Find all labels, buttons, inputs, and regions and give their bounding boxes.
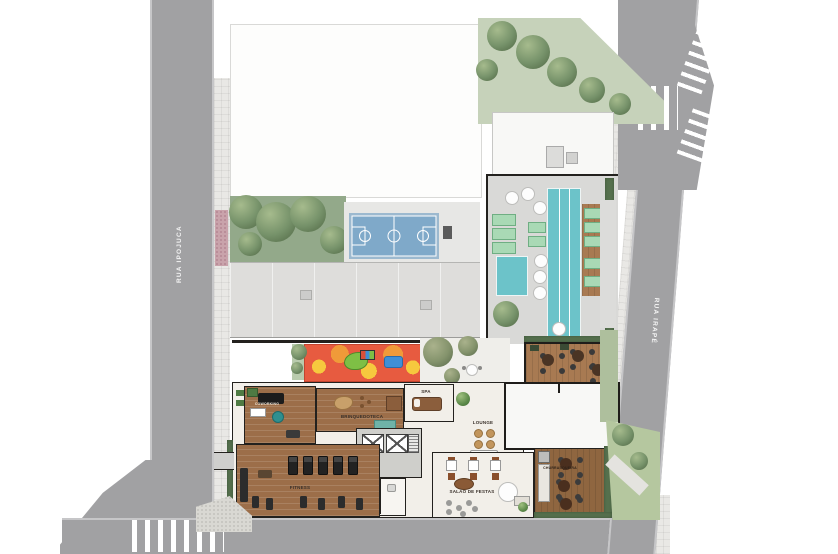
east-path bbox=[600, 200, 616, 328]
exercise-bike bbox=[338, 496, 345, 508]
tree bbox=[630, 452, 648, 470]
kids-table bbox=[386, 396, 402, 411]
patio-chair bbox=[462, 366, 466, 370]
terrace-table bbox=[572, 350, 584, 362]
flower-bed bbox=[215, 210, 228, 266]
tree bbox=[458, 336, 478, 356]
kids-pool bbox=[496, 256, 528, 296]
lounge-plant bbox=[456, 392, 470, 406]
exercise-bike bbox=[300, 496, 307, 508]
coworking-table bbox=[250, 408, 266, 417]
lounge-chair bbox=[486, 440, 495, 449]
exercise-bike bbox=[318, 498, 325, 510]
umbrella-table bbox=[521, 187, 535, 201]
bbq-table bbox=[558, 480, 570, 492]
party-plant bbox=[518, 502, 528, 512]
spa-label: SPA bbox=[416, 389, 436, 394]
treadmill bbox=[303, 456, 313, 475]
roof-tick bbox=[558, 384, 560, 393]
treadmill bbox=[333, 456, 343, 475]
east-lawn bbox=[600, 330, 618, 422]
wc-fixture bbox=[387, 484, 396, 492]
tree bbox=[579, 77, 605, 103]
lap-pool bbox=[547, 188, 581, 337]
umbrella-table bbox=[505, 191, 519, 205]
tree bbox=[290, 196, 326, 232]
umbrella-table bbox=[533, 286, 547, 300]
sun-lounger bbox=[492, 214, 516, 226]
lounge-chair bbox=[486, 429, 495, 438]
exercise-bike bbox=[252, 496, 259, 508]
coworking-chair bbox=[272, 411, 284, 423]
tree bbox=[238, 232, 262, 256]
lounge-chair bbox=[474, 440, 483, 449]
site-plan: RUA IPOJUCA RUA IRAPÉ bbox=[0, 0, 838, 554]
umbrella-table bbox=[534, 254, 548, 268]
fitness-label: FITNESS bbox=[270, 485, 330, 490]
entry-planter bbox=[236, 390, 244, 396]
play-frame bbox=[360, 350, 375, 360]
weight-rack bbox=[240, 468, 248, 502]
bbq-grill bbox=[538, 451, 550, 463]
exercise-bike bbox=[266, 498, 273, 510]
entry-planter bbox=[236, 400, 244, 406]
treadmill bbox=[318, 456, 328, 475]
tree bbox=[487, 21, 517, 51]
toy bbox=[360, 404, 364, 408]
treadmill bbox=[348, 456, 358, 475]
sports-court bbox=[349, 213, 439, 259]
barbecue-label: CHURRASQUEIRA bbox=[538, 466, 582, 471]
toy bbox=[367, 400, 371, 404]
bbq-table bbox=[560, 498, 572, 510]
terrace-wall bbox=[232, 340, 422, 343]
tree bbox=[291, 344, 307, 360]
cable-station bbox=[286, 430, 300, 438]
street-label-left: RUA IPOJUCA bbox=[176, 225, 183, 283]
rooftop-vent bbox=[420, 300, 432, 310]
bbq-hedge bbox=[534, 512, 612, 518]
sun-lounger bbox=[528, 236, 546, 247]
lounge-label: LOUNGE bbox=[463, 420, 503, 425]
party-chair bbox=[460, 511, 466, 517]
toy bbox=[360, 396, 364, 400]
spa-pillow bbox=[414, 399, 420, 407]
tree bbox=[291, 362, 303, 374]
party-chair bbox=[446, 500, 452, 506]
bench bbox=[258, 470, 272, 478]
vacant-lot-roof bbox=[230, 24, 482, 198]
terrace-planter bbox=[560, 344, 569, 350]
tree bbox=[493, 301, 519, 327]
party-room-label: SALÃO DE FESTAS bbox=[442, 489, 502, 494]
coworking-label: COWORKING bbox=[252, 402, 282, 407]
umbrella-table bbox=[533, 201, 547, 215]
tree bbox=[476, 59, 498, 81]
terrace-planter bbox=[530, 345, 539, 351]
rooftop-equipment bbox=[566, 152, 578, 164]
party-chair bbox=[456, 505, 462, 511]
elevator-shaft bbox=[386, 434, 408, 453]
tree bbox=[612, 424, 634, 446]
court-equipment bbox=[443, 226, 452, 239]
rooftop-equipment bbox=[546, 146, 564, 168]
tree bbox=[516, 35, 550, 69]
party-table bbox=[446, 460, 457, 471]
sun-lounger bbox=[528, 222, 546, 233]
play-car bbox=[384, 356, 403, 368]
sun-lounger bbox=[492, 228, 516, 240]
party-table bbox=[468, 460, 479, 471]
patio-table bbox=[466, 364, 478, 376]
exercise-bike bbox=[356, 498, 363, 510]
rooftop-vent bbox=[300, 290, 312, 300]
terrace-table bbox=[542, 354, 554, 366]
party-table bbox=[490, 460, 501, 471]
party-chair bbox=[466, 500, 472, 506]
lounge-chair bbox=[474, 429, 483, 438]
entry-path bbox=[214, 452, 234, 470]
tree bbox=[423, 337, 453, 367]
coworking-plant bbox=[247, 388, 258, 397]
tree bbox=[547, 57, 577, 87]
umbrella-table bbox=[533, 270, 547, 284]
brinquedoteca-label: BRINQUEDOTECA bbox=[330, 414, 394, 419]
tower-slab-roof bbox=[230, 262, 480, 338]
party-chair bbox=[472, 506, 478, 512]
patio-chair bbox=[478, 366, 482, 370]
stairs bbox=[408, 434, 419, 453]
party-chair bbox=[446, 509, 452, 515]
sun-lounger bbox=[492, 242, 516, 254]
umbrella-table bbox=[552, 322, 566, 336]
court-markings bbox=[349, 213, 439, 259]
treadmill bbox=[288, 456, 298, 475]
